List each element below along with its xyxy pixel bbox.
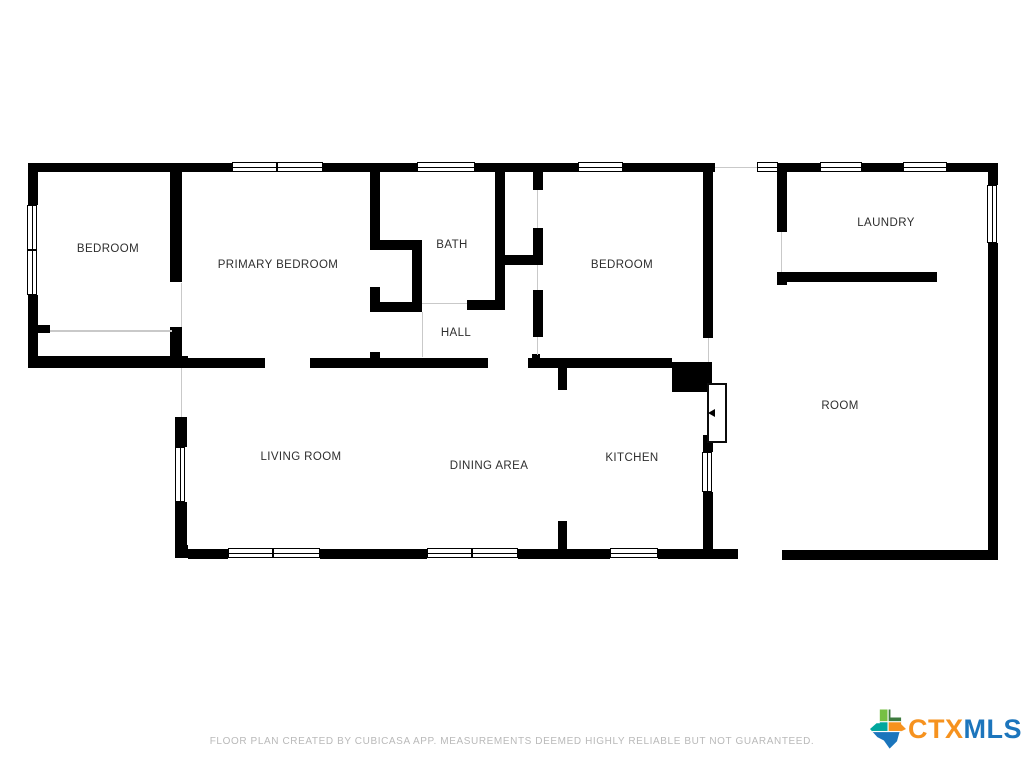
window xyxy=(472,548,518,558)
wall-segment xyxy=(777,272,937,282)
door-opening-line xyxy=(181,368,182,417)
wall-segment xyxy=(558,367,567,390)
wall-segment xyxy=(323,163,417,172)
wall-segment xyxy=(495,172,505,310)
wall-segment xyxy=(320,549,427,559)
window xyxy=(417,162,475,172)
door-opening-line xyxy=(781,232,782,272)
wall-segment xyxy=(533,290,543,337)
room-label-hall: HALL xyxy=(441,327,471,339)
door-opening-line xyxy=(537,265,538,290)
wall-segment xyxy=(533,172,543,190)
wall-segment xyxy=(38,325,50,333)
window xyxy=(578,162,623,172)
wall-segment xyxy=(370,240,422,250)
wall-segment xyxy=(175,417,187,447)
door-opening-line xyxy=(50,330,172,332)
texas-map-icon xyxy=(870,708,906,750)
window xyxy=(757,162,778,172)
wall-segment xyxy=(28,163,232,172)
wall-segment xyxy=(782,550,998,560)
brand-suffix: MLS xyxy=(964,714,1023,744)
wall-segment xyxy=(370,352,380,359)
wall-segment xyxy=(777,272,787,285)
window xyxy=(277,162,323,172)
room-label-bedroom: BEDROOM xyxy=(591,259,653,271)
window xyxy=(27,250,37,295)
wall-segment xyxy=(532,354,540,359)
wall-segment xyxy=(310,358,488,368)
wall-segment xyxy=(182,358,265,368)
window xyxy=(273,548,320,558)
wall-segment xyxy=(170,163,182,282)
window xyxy=(228,548,273,558)
window xyxy=(903,162,947,172)
wall-segment xyxy=(505,255,543,265)
floor-plan-page: BEDROOMPRIMARY BEDROOMBATHHALLBEDROOMLAU… xyxy=(0,0,1024,768)
room-label-laundry: LAUNDRY xyxy=(857,217,915,229)
window xyxy=(427,548,472,558)
wall-segment xyxy=(28,356,188,368)
window xyxy=(175,447,185,502)
window xyxy=(702,452,712,492)
window xyxy=(987,185,997,243)
wall-segment xyxy=(175,545,188,558)
wall-segment xyxy=(988,163,998,185)
door-opening-line xyxy=(708,338,709,362)
wall-segment xyxy=(28,163,38,205)
room-label-room: ROOM xyxy=(821,400,858,412)
wall-segment xyxy=(528,358,672,368)
wall-segment xyxy=(370,302,422,312)
wall-segment xyxy=(672,362,712,392)
window xyxy=(27,205,37,250)
wall-segment xyxy=(475,163,578,172)
door-opening-line xyxy=(715,167,757,168)
brand-wordmark: CTXMLS xyxy=(908,714,1022,745)
door-swing-arrow xyxy=(708,409,715,417)
wall-segment xyxy=(777,163,787,232)
wall-segment xyxy=(623,163,715,172)
door-opening-line xyxy=(537,190,538,228)
door-opening-line xyxy=(422,303,467,304)
door-opening-line xyxy=(537,337,538,355)
wall-segment xyxy=(703,172,713,338)
wall-segment xyxy=(658,549,738,559)
door-opening-line xyxy=(422,312,423,357)
ctxmls-logo: CTXMLS xyxy=(870,706,1020,758)
wall-segment xyxy=(518,549,610,559)
wall-segment xyxy=(988,243,998,560)
window xyxy=(610,548,658,558)
wall-segment xyxy=(370,172,380,240)
wall-segment xyxy=(188,549,228,559)
door-opening-line xyxy=(181,283,182,327)
wall-segment xyxy=(862,163,903,172)
room-label-kitchen: KITCHEN xyxy=(605,452,658,464)
room-label-bedroom: BEDROOM xyxy=(77,243,139,255)
room-label-dining-area: DINING AREA xyxy=(450,460,529,472)
room-label-primary-bedroom: PRIMARY BEDROOM xyxy=(218,259,339,271)
room-label-bath: BATH xyxy=(436,239,467,251)
room-label-living-room: LIVING ROOM xyxy=(260,451,341,463)
window xyxy=(820,162,862,172)
brand-prefix: CTX xyxy=(908,714,964,744)
window xyxy=(232,162,277,172)
